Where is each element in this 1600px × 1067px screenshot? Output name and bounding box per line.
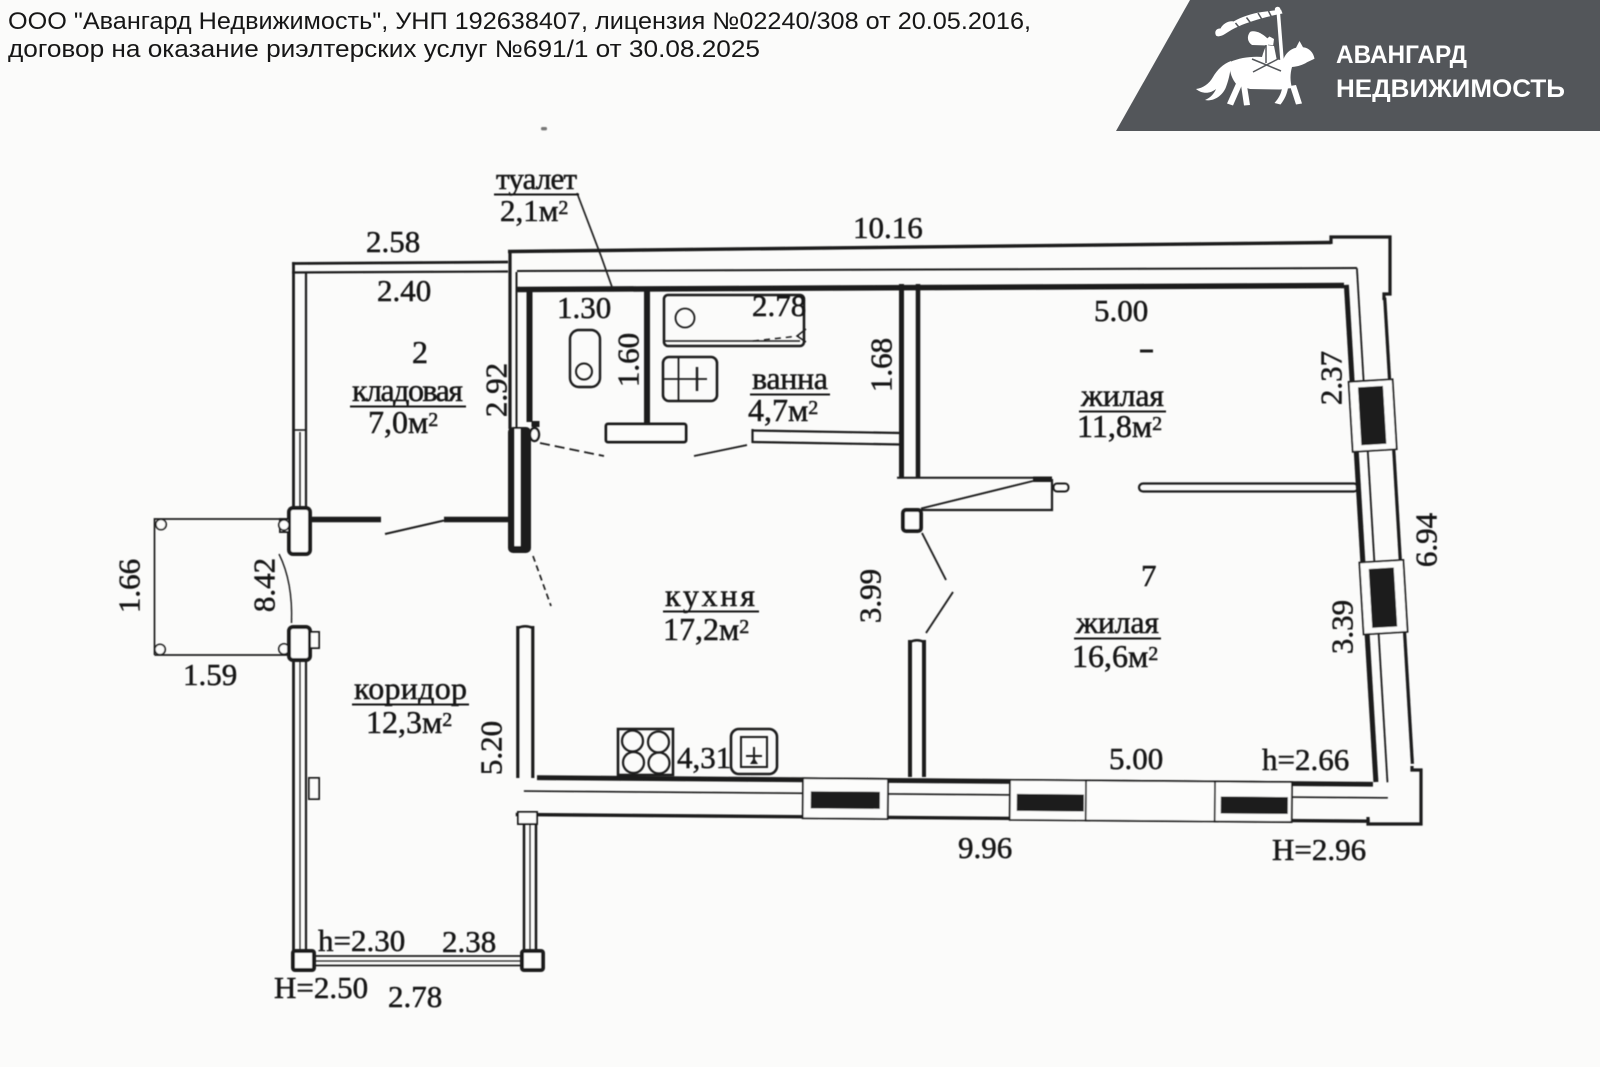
- svg-text:2: 2: [412, 334, 428, 370]
- svg-text:3.39: 3.39: [1325, 600, 1360, 654]
- svg-text:1.60: 1.60: [611, 333, 646, 387]
- svg-text:коридор: коридор: [354, 670, 467, 706]
- svg-text:12,3м2: 12,3м2: [366, 704, 452, 740]
- svg-text:h=2.30: h=2.30: [318, 923, 405, 958]
- svg-text:2.58: 2.58: [366, 224, 420, 259]
- svg-text:2.92: 2.92: [479, 363, 514, 417]
- svg-text:4,7м2: 4,7м2: [748, 392, 818, 428]
- svg-text:8.42: 8.42: [247, 558, 282, 612]
- svg-text:3.99: 3.99: [853, 569, 888, 623]
- svg-text:1.68: 1.68: [864, 338, 899, 392]
- svg-text:6.94: 6.94: [1409, 512, 1444, 567]
- svg-text:2.40: 2.40: [377, 273, 431, 308]
- svg-text:7: 7: [1141, 558, 1157, 593]
- svg-text:2.37: 2.37: [1314, 351, 1349, 405]
- svg-text:1.30: 1.30: [557, 290, 611, 325]
- svg-text:Н=2.96: Н=2.96: [1272, 832, 1366, 867]
- svg-text:10.16: 10.16: [853, 210, 923, 245]
- svg-text:4,31: 4,31: [677, 740, 731, 775]
- svg-text:2.78: 2.78: [752, 288, 806, 323]
- svg-text:НЕДВИЖИМОСТЬ: НЕДВИЖИМОСТЬ: [1336, 75, 1565, 103]
- svg-text:2.38: 2.38: [442, 924, 496, 959]
- svg-text:11,8м2: 11,8м2: [1077, 408, 1162, 444]
- svg-text:Н=2.50: Н=2.50: [274, 970, 368, 1005]
- svg-text:кладовая: кладовая: [352, 372, 463, 408]
- svg-text:7,0м2: 7,0м2: [368, 404, 438, 440]
- svg-text:5.00: 5.00: [1094, 293, 1148, 328]
- svg-text:АВАНГАРД: АВАНГАРД: [1336, 41, 1467, 69]
- svg-text:5.20: 5.20: [474, 721, 509, 775]
- svg-text:5.00: 5.00: [1109, 741, 1163, 776]
- svg-text:кухня: кухня: [665, 577, 755, 613]
- svg-text:ООО "Авангард Недвижимость", У: ООО "Авангард Недвижимость", УНП 1926384…: [8, 8, 1031, 35]
- svg-text:жилая: жилая: [1075, 604, 1159, 640]
- svg-text:туалет: туалет: [496, 161, 577, 196]
- svg-text:16,6м2: 16,6м2: [1072, 638, 1158, 674]
- svg-text:договор на оказание риэлтерски: договор на оказание риэлтерских услуг №6…: [8, 36, 760, 63]
- svg-text:2,1м2: 2,1м2: [500, 193, 568, 228]
- svg-text:2.78: 2.78: [388, 979, 442, 1014]
- svg-text:ванна: ванна: [752, 360, 828, 396]
- svg-text:1.59: 1.59: [183, 657, 237, 692]
- svg-text:h=2.66: h=2.66: [1262, 742, 1349, 777]
- svg-text:17,2м2: 17,2м2: [663, 611, 749, 647]
- svg-text:1.66: 1.66: [112, 559, 147, 613]
- svg-text:9.96: 9.96: [958, 830, 1012, 865]
